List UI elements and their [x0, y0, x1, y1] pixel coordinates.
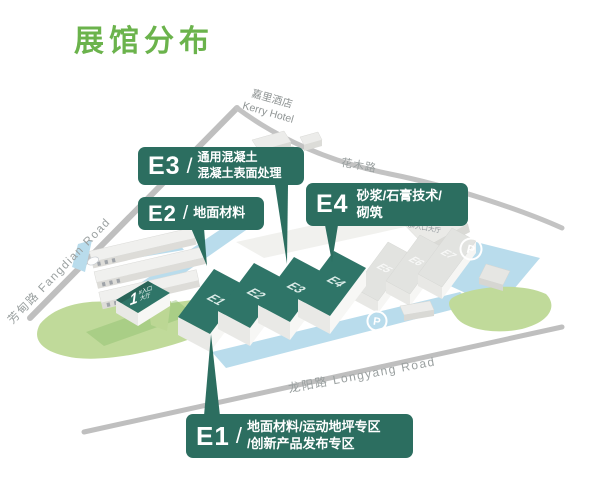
callout-e1-id: E1 [196, 423, 230, 449]
entrance-1-number: 1 [129, 289, 137, 309]
exhibition-map-page: 展馆分布 [0, 0, 600, 478]
callout-e4-text: 砂浆/石膏技术/ 砌筑 [357, 188, 442, 222]
callout-e3-line2: 混凝土表面处理 [197, 166, 281, 182]
callout-e2-slash: / [183, 204, 188, 223]
callout-e2: E2 / 地面材料 [138, 197, 264, 230]
callout-e4-id: E4 [316, 192, 349, 217]
callout-e1-line1: 地面材料/运动地坪专区 [247, 419, 381, 436]
callout-e2-text: 地面材料 [193, 205, 245, 222]
callout-e3-line1: 通用混凝土 [197, 150, 281, 166]
callout-e1-slash: / [236, 425, 242, 447]
callout-e1: E1 / 地面材料/运动地坪专区 /创新产品发布专区 [186, 414, 413, 458]
callout-e3: E3 / 通用混凝土 混凝土表面处理 [138, 147, 304, 185]
callout-e3-slash: / [187, 156, 193, 177]
callout-e2-id: E2 [148, 203, 177, 225]
callout-e4: E4 砂浆/石膏技术/ 砌筑 [306, 183, 468, 226]
callout-e3-id: E3 [148, 154, 181, 179]
lawn-bottom-right [449, 287, 551, 332]
callout-e4-line1: 砂浆/石膏技术/ [357, 188, 442, 205]
callout-e1-text: 地面材料/运动地坪专区 /创新产品发布专区 [247, 419, 381, 453]
callout-e1-line2: /创新产品发布专区 [247, 436, 381, 453]
callout-e2-line1: 地面材料 [193, 205, 245, 222]
callout-e3-text: 通用混凝土 混凝土表面处理 [197, 150, 281, 181]
callout-e4-line2: 砌筑 [357, 205, 442, 222]
